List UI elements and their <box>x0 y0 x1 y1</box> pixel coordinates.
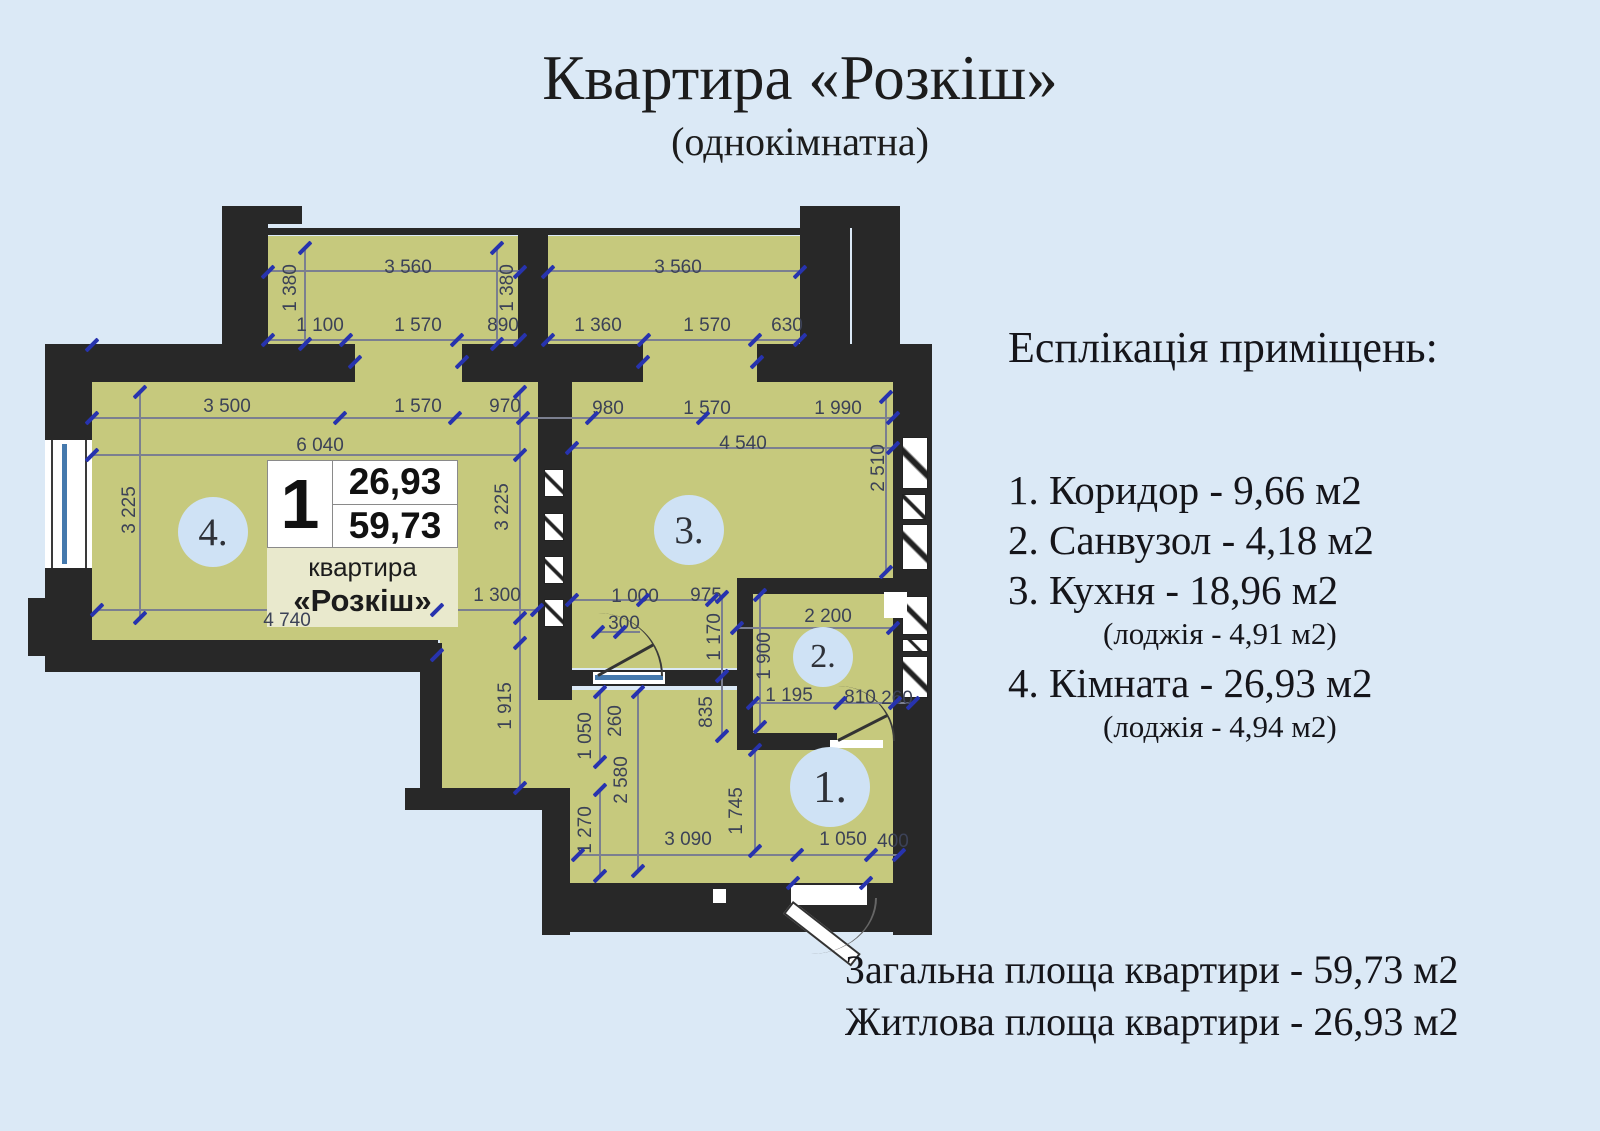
dimension-label: 3 225 <box>119 486 141 534</box>
wall <box>548 228 800 235</box>
dimension-label: 1 195 <box>765 685 813 707</box>
window-frame <box>51 440 53 568</box>
dimension-label: 970 <box>489 396 521 418</box>
vent-shaft <box>903 525 927 569</box>
dimension-label: 630 <box>771 315 803 337</box>
dim-line <box>637 691 639 872</box>
dimension-label: 2 200 <box>804 606 852 628</box>
vent-shaft <box>903 640 927 651</box>
dim-line <box>578 854 899 856</box>
dimension-label: 1 900 <box>754 632 776 680</box>
dimension-label: 3 225 <box>492 483 514 531</box>
vent-shaft <box>545 557 563 583</box>
vent-shaft <box>903 438 927 488</box>
dimension-label: 1 300 <box>473 585 521 607</box>
dimension-label: 1 270 <box>575 806 597 854</box>
dimension-label: 810 <box>844 687 876 709</box>
room-marker: 2. <box>793 627 853 687</box>
vent-shaft <box>545 514 563 540</box>
room-marker: 3. <box>654 495 724 565</box>
explication-item: 4. Кімната - 26,93 м2 <box>1008 658 1568 708</box>
dimension-label: 1 990 <box>814 398 862 420</box>
dimension-label: 1 100 <box>296 315 344 337</box>
dimension-label: 1 380 <box>280 264 302 312</box>
dimension-label: 3 500 <box>203 396 251 418</box>
dimension-label: 1 745 <box>726 787 748 835</box>
dimension-label: 4 540 <box>719 433 767 455</box>
floor-plan-page: Квартира «Розкіш» (однокімнатна) <box>0 0 1600 1131</box>
wall <box>45 344 92 440</box>
floor-plan: 1 26,93 59,73 квартира «Розкіш» 3 5601 3… <box>0 0 960 1000</box>
living-area-value: 26,93 <box>333 461 457 505</box>
dimension-label: 1 050 <box>575 712 597 760</box>
explication-item: 2. Санвузол - 4,18 м2 <box>1008 515 1568 565</box>
dimension-label: 4 740 <box>263 610 311 632</box>
dimension-label: 980 <box>592 398 624 420</box>
wall <box>222 206 268 352</box>
wall <box>222 206 302 224</box>
dim-line <box>599 691 601 763</box>
explication-item: 3. Кухня - 18,96 м2 <box>1008 565 1568 615</box>
dimension-label: 3 560 <box>654 257 702 279</box>
dimension-label: 6 040 <box>296 435 344 457</box>
total-area-line: Загальна площа квартири - 59,73 м2 <box>845 944 1459 996</box>
wall-detail <box>713 889 726 903</box>
balcony-door-opening <box>643 344 757 382</box>
room-marker: 4. <box>178 497 248 567</box>
dimension-label: 1 570 <box>683 315 731 337</box>
wall <box>420 643 442 810</box>
living-area-line: Житлова площа квартири - 26,93 м2 <box>845 996 1459 1048</box>
flat-number: 1 <box>268 461 333 547</box>
dim-line <box>599 789 601 877</box>
dimension-label: 2 580 <box>611 756 633 804</box>
wall <box>800 206 850 346</box>
dim-line <box>548 339 800 341</box>
wall <box>538 382 572 700</box>
vent-shaft <box>545 470 563 496</box>
dimension-label: 1 380 <box>497 264 519 312</box>
wall <box>737 578 753 748</box>
wall <box>852 206 900 346</box>
explication-subitem: (лоджія - 4,91 м2) <box>1103 615 1568 654</box>
apartment-info-card: 1 26,93 59,73 квартира «Розкіш» <box>267 460 458 627</box>
total-area-value: 59,73 <box>333 505 457 548</box>
dimension-label: 1 050 <box>819 829 867 851</box>
dimension-label: 1 915 <box>495 682 517 730</box>
dimension-label: 260 <box>605 705 627 737</box>
wall-niche <box>884 592 907 618</box>
explication-heading: Есплікація приміщень: <box>1008 322 1568 373</box>
dimension-label: 1 170 <box>704 613 726 661</box>
dimension-label: 1 570 <box>394 315 442 337</box>
dimension-label: 1 360 <box>574 315 622 337</box>
vent-shaft <box>903 495 925 519</box>
dimension-label: 1 570 <box>394 396 442 418</box>
explication-item: 1. Коридор - 9,66 м2 <box>1008 465 1568 515</box>
dimension-label: 890 <box>487 315 519 337</box>
area-totals: Загальна площа квартири - 59,73 м2 Житло… <box>845 944 1459 1048</box>
explication-subitem: (лоджія - 4,94 м2) <box>1103 708 1568 747</box>
dimension-label: 3 090 <box>664 829 712 851</box>
window-glass <box>62 444 67 564</box>
vent-shaft <box>545 600 563 626</box>
explication: Есплікація приміщень: 1. Коридор - 9,66 … <box>1008 322 1568 751</box>
balcony-door-opening <box>355 344 462 382</box>
room-marker: 1. <box>790 747 870 827</box>
dimension-label: 3 560 <box>384 257 432 279</box>
wall <box>45 640 438 672</box>
dim-line <box>754 749 756 852</box>
card-caption: квартира <box>267 552 458 583</box>
passage-floor-2 <box>538 700 572 788</box>
dimension-label: 835 <box>696 696 718 728</box>
wall <box>264 228 532 235</box>
explication-list: 1. Коридор - 9,66 м22. Санвузол - 4,18 м… <box>1008 465 1568 747</box>
passage-floor <box>440 640 538 788</box>
